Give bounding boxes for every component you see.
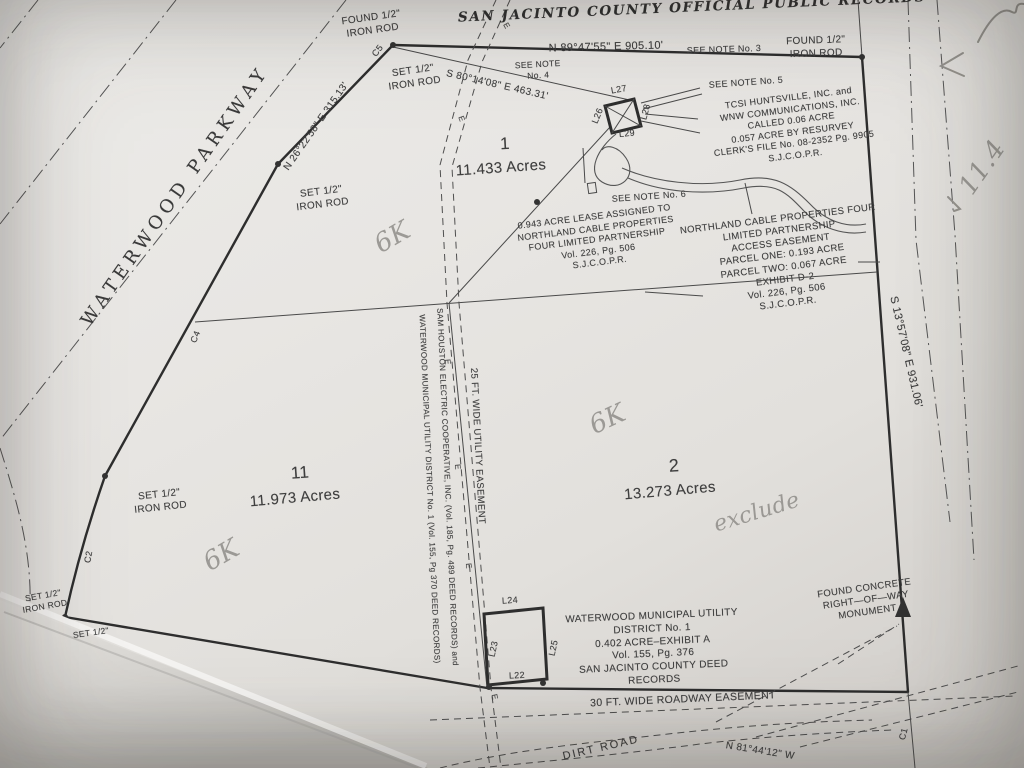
easement-marker-e: E [463, 563, 474, 570]
wmud-text-block: WATERWOOD MUNICIPAL UTILITYDISTRICT No. … [565, 607, 741, 691]
easement-marker-e: E [452, 464, 463, 471]
survey-plat-photo: SAN JACINTO COUNTY OFFICIAL PUBLIC RECOR… [0, 0, 1024, 768]
paper-fold [0, 594, 428, 768]
found-rod-top-right: FOUND 1/2"IRON ROD [786, 34, 846, 62]
bearing-north: N 89°47'55" E 905.10' [549, 38, 664, 55]
east-row-lines [908, 0, 974, 560]
parcel-11-number: 11 [290, 462, 310, 485]
note-4: SEE NOTENo. 4 [515, 58, 562, 82]
line-label-l22: L22 [509, 670, 526, 682]
parkway-row-lines [0, 0, 346, 610]
set-rod-3: SET 1/2"IRON ROD [132, 487, 187, 518]
line-label-l24: L24 [502, 595, 519, 608]
line-label-l29: L29 [618, 127, 635, 140]
parcel-1-number: 1 [500, 133, 511, 155]
curve-label-c2: C2 [82, 550, 95, 564]
dirt-road-lines [440, 720, 892, 768]
easement-marker-e: E [442, 359, 453, 366]
parcel-2-number: 2 [668, 454, 680, 478]
